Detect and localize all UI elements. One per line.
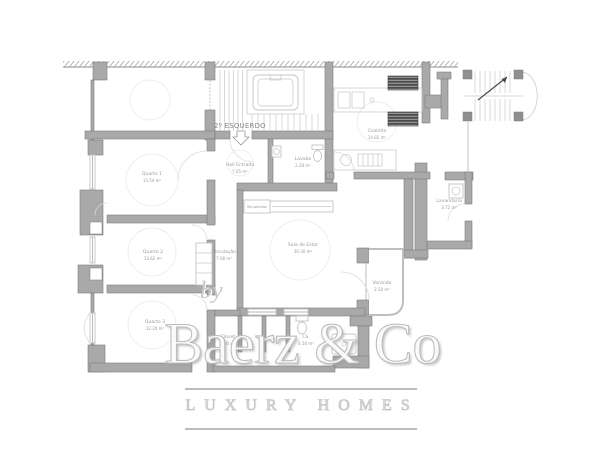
room-label-hall: Hall Entrada [226, 162, 255, 168]
room-area-cozinha: 14.82 m² [368, 135, 387, 140]
floor-plan: 2º ESQUERDO Quarto 1 13.54 m² Quarto 2 1… [0, 0, 600, 450]
room-area-lavabo: 2.28 m² [295, 163, 311, 168]
room-label-cozinha: Cozinha [368, 128, 387, 134]
room-area-lavandaria: 3.72 m² [441, 205, 457, 210]
room-label-closet: Closet [221, 334, 236, 340]
room-label-quarto2: Quarto 2 [143, 249, 163, 255]
toilet-icon [296, 316, 308, 334]
down-arrow-icon [233, 131, 249, 145]
washing-machine-icon [449, 184, 463, 198]
boundary-hatch [63, 61, 458, 67]
room-label-lavandaria: Lavandaria [436, 198, 462, 204]
room-area-sala: 30.30 m² [294, 249, 313, 254]
exterior-stairs-icon [463, 70, 537, 121]
room-label-lavabo: Lavabo [295, 156, 312, 162]
shower-icon [332, 334, 356, 354]
room-area-quarto3: 12.20 m² [146, 326, 165, 331]
room-label-varanda: Varanda [373, 280, 392, 286]
room-label-quarto1: Quarto 1 [142, 171, 162, 177]
toilet-icon [312, 145, 323, 162]
floor-plan-page: 2º ESQUERDO Quarto 1 13.54 m² Quarto 2 1… [0, 0, 600, 450]
room-area-quarto2: 13.62 m² [144, 256, 163, 261]
appliance-icons [388, 76, 418, 126]
room-area-quarto1: 13.54 m² [143, 178, 162, 183]
room-label-sala: Sala de Estar [288, 242, 318, 248]
room-area-closet: 6.20 m² [220, 341, 236, 346]
room-area-varanda: 2.50 m² [374, 287, 390, 292]
room-area-circulacao: 7.08 m² [216, 256, 232, 261]
elevator-icon [247, 70, 304, 114]
room-label-circulacao: Circulação [212, 249, 236, 255]
room-label-quarto3: Quarto 3 [145, 319, 165, 325]
fireplace-label: Recuperador [247, 205, 267, 209]
room-label-is: I.S. [302, 334, 309, 340]
unit-label: 2º ESQUERDO [214, 122, 266, 130]
sink-icon [272, 146, 281, 157]
room-area-hall: 7.05 m² [232, 169, 248, 174]
room-area-is: 4.50 m² [298, 341, 314, 346]
wardrobe-icon [196, 243, 212, 285]
